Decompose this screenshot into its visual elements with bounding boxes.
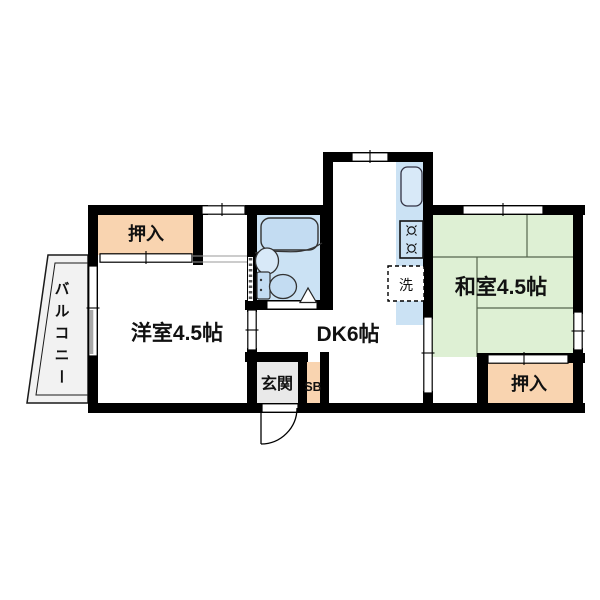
- washbasin-icon: [256, 248, 279, 274]
- balcony-label: バルコニー: [51, 281, 72, 391]
- window-pane: [90, 310, 94, 354]
- floor-plan: 押入 洋室4.5帖 バルコニー 玄関 SB DK6帖 洗 和室4.5帖 押入: [0, 0, 600, 600]
- washing-machine-label: 洗: [399, 275, 413, 295]
- window: [202, 206, 245, 214]
- kitchen-sink-icon: [401, 167, 422, 206]
- japanese-room-label: 和室4.5帖: [455, 271, 547, 301]
- toilet-icon: [257, 272, 297, 299]
- closet-top-label: 押入: [128, 220, 164, 246]
- bathtub-icon: [261, 218, 318, 250]
- western-room-label: 洋室4.5帖: [131, 317, 223, 347]
- dining-kitchen-label: DK6帖: [316, 318, 379, 348]
- closet-bottom-sliding-door: [488, 355, 568, 363]
- japanese-room-sliding-door: [424, 317, 432, 393]
- closet-bottom-label: 押入: [511, 370, 547, 396]
- entrance-label: 玄関: [261, 370, 293, 394]
- shoe-box-label: SB: [304, 380, 321, 394]
- entrance-door-opening: [262, 404, 298, 412]
- entrance-door-arc: [261, 408, 297, 444]
